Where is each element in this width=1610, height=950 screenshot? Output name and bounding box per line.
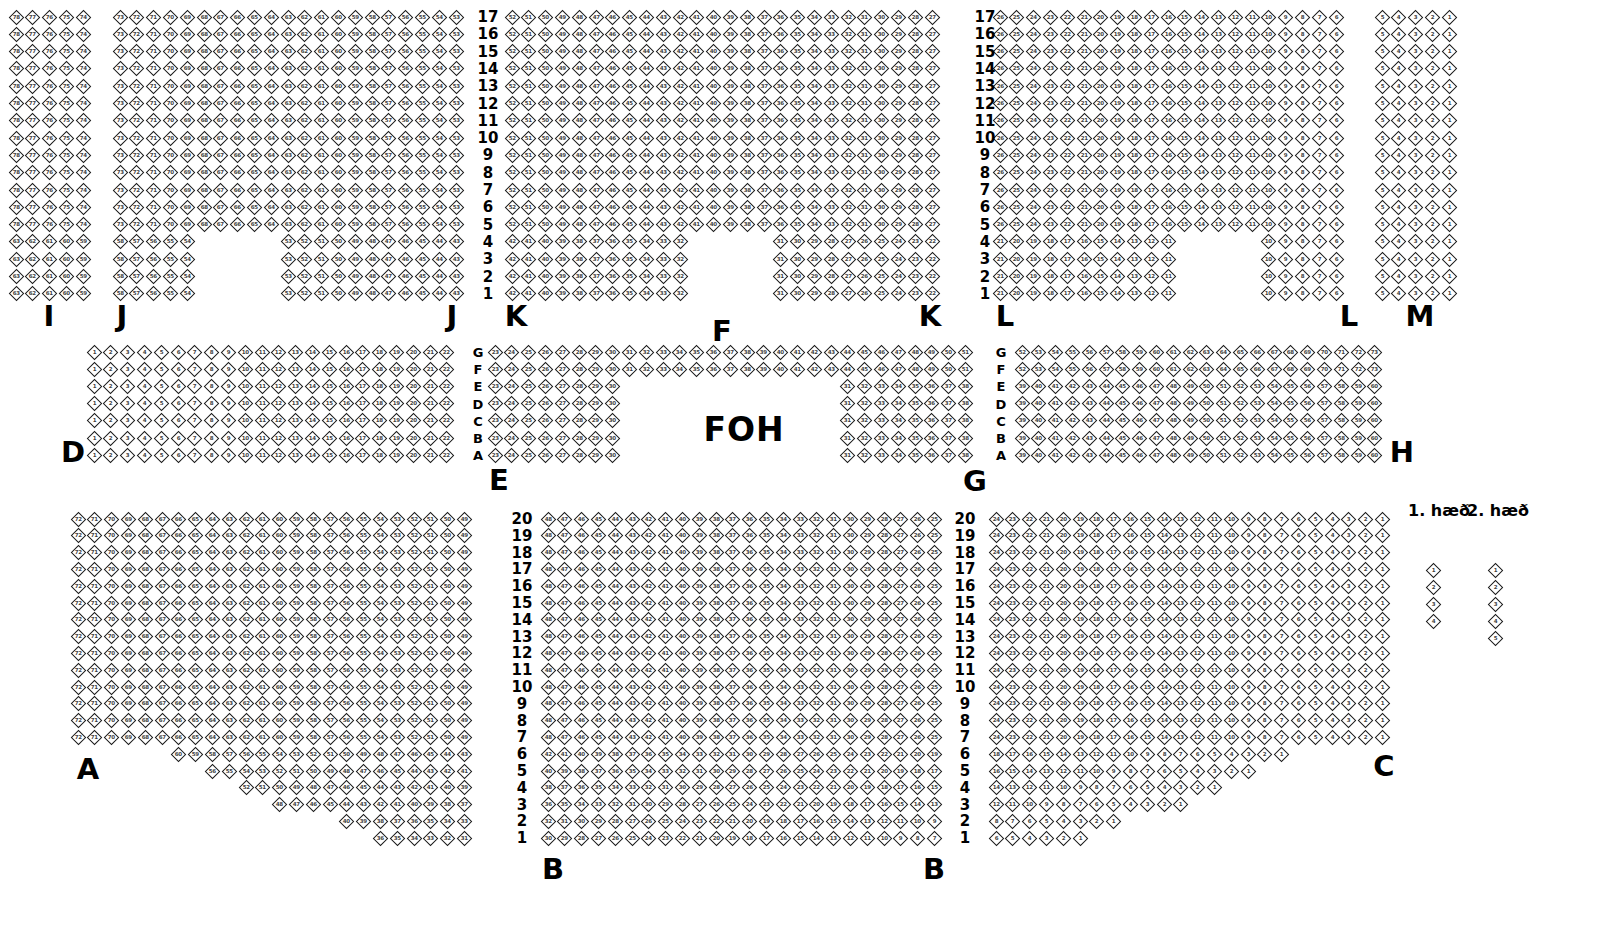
seat-L-3[interactable]: 15 [1093,251,1109,267]
seat-L-15[interactable]: 11 [1244,44,1260,60]
seat-L-11[interactable]: 18 [1127,113,1143,129]
seat-A-11[interactable]: 60 [272,662,288,678]
seat-B-20[interactable]: 38 [708,511,724,527]
seat-K-2[interactable]: 26 [857,269,873,285]
seat-B-13[interactable]: 26 [910,629,926,645]
seat-EFG-G[interactable]: 49 [924,344,940,360]
seat-H-A[interactable]: 45 [1115,447,1131,463]
seat-I-4[interactable]: 63 [8,234,24,250]
seat-A-20[interactable]: 66 [171,511,187,527]
seat-K-14[interactable]: 27 [924,61,940,77]
seat-K-12[interactable]: 46 [605,96,621,112]
seat-I-7[interactable]: 78 [8,182,24,198]
seat-K-14[interactable]: 33 [823,61,839,77]
seat-L-4[interactable]: 7 [1311,234,1327,250]
seat-B-1[interactable]: 14 [809,830,825,846]
seat-L-14[interactable]: 18 [1127,61,1143,77]
seat-J-7[interactable]: 68 [196,182,212,198]
seat-D-E[interactable]: 20 [405,379,421,395]
seat-A-10[interactable]: 56 [339,679,355,695]
seat-C-8[interactable]: 9 [1240,713,1256,729]
seat-K-9[interactable]: 29 [891,148,907,164]
seat-L-9[interactable]: 9 [1278,148,1294,164]
seat-K-7[interactable]: 39 [723,182,739,198]
seat-D-C[interactable]: 1 [86,413,102,429]
seat-C-6[interactable]: 3 [1240,746,1256,762]
seat-EFG-B[interactable]: 23 [487,430,503,446]
seat-A-8[interactable]: 66 [171,713,187,729]
seat-H-B[interactable]: 39 [1014,430,1030,446]
seat-B-7[interactable]: 26 [910,730,926,746]
seat-B-17[interactable]: 40 [675,562,691,578]
seat-D-A[interactable]: 13 [288,447,304,463]
seat-H-F[interactable]: 66 [1249,361,1265,377]
seat-L-16[interactable]: 10 [1261,27,1277,43]
seat-A-4[interactable]: 44 [373,780,389,796]
seat-A-6[interactable]: 44 [440,746,456,762]
seat-J-6[interactable]: 71 [146,200,162,216]
seat-I-12[interactable]: 76 [42,96,58,112]
seat-J-8[interactable]: 53 [448,165,464,181]
seat-C-10[interactable]: 4 [1324,679,1340,695]
seat-C-13[interactable]: 4 [1324,629,1340,645]
seat-C-4[interactable]: 13 [1005,780,1021,796]
seat-A-15[interactable]: 50 [440,595,456,611]
seat-C-3[interactable]: 5 [1106,797,1122,813]
seat-K-10[interactable]: 44 [639,130,655,146]
seat-L-10[interactable]: 9 [1278,130,1294,146]
seat-D-B[interactable]: 7 [187,430,203,446]
seat-J-9[interactable]: 63 [280,148,296,164]
seat-M-8[interactable]: 4 [1391,165,1407,181]
seat-K-8[interactable]: 29 [891,165,907,181]
seat-A-6[interactable]: 57 [221,746,237,762]
seat-B-17[interactable]: 46 [574,562,590,578]
seat-I-6[interactable]: 78 [8,200,24,216]
seat-L-8[interactable]: 17 [1143,165,1159,181]
seat-B-19[interactable]: 36 [742,528,758,544]
seat-K-2[interactable]: 34 [639,269,655,285]
seat-B-18[interactable]: 30 [843,545,859,561]
seat-C-7[interactable]: 17 [1106,730,1122,746]
seat-L-8[interactable]: 26 [992,165,1008,181]
seat-I-14[interactable]: 78 [8,61,24,77]
seat-C-16[interactable]: 15 [1139,578,1155,594]
seat-K-10[interactable]: 34 [807,130,823,146]
seat-EFG-A[interactable]: 32 [857,447,873,463]
seat-C-12[interactable]: 22 [1022,646,1038,662]
seat-A-13[interactable]: 51 [423,629,439,645]
seat-EFG-G[interactable]: 45 [857,344,873,360]
seat-L-14[interactable]: 15 [1177,61,1193,77]
seat-L-10[interactable]: 7 [1311,130,1327,146]
seat-D-G[interactable]: 12 [271,344,287,360]
seat-B-17[interactable]: 30 [843,562,859,578]
seat-K-17[interactable]: 49 [555,9,571,25]
seat-D-G[interactable]: 21 [422,344,438,360]
seat-L-16[interactable]: 25 [1009,27,1025,43]
seat-L-5[interactable]: 17 [1143,217,1159,233]
seat-H-C[interactable]: 43 [1081,413,1097,429]
seat-I-2[interactable]: 61 [42,269,58,285]
seat-C-9[interactable]: 24 [988,696,1004,712]
seat-C-11[interactable]: 4 [1324,662,1340,678]
seat-A-14[interactable]: 61 [255,612,271,628]
seat-A-6[interactable]: 53 [289,746,305,762]
seat-A-8[interactable]: 64 [205,713,221,729]
seat-C-17[interactable]: 9 [1240,562,1256,578]
seat-L-14[interactable]: 11 [1244,61,1260,77]
seat-J-3[interactable]: 53 [280,251,296,267]
seat-J-9[interactable]: 69 [179,148,195,164]
seat-I-9[interactable]: 76 [42,148,58,164]
seat-B-15[interactable]: 36 [742,595,758,611]
seat-EFG-E[interactable]: 33 [874,379,890,395]
seat-C-20[interactable]: 22 [1022,511,1038,527]
seat-B-12[interactable]: 38 [708,646,724,662]
seat-K-13[interactable]: 44 [639,78,655,94]
seat-C-16[interactable]: 22 [1022,578,1038,594]
seat-J-6[interactable]: 62 [297,200,313,216]
seat-EFG-E[interactable]: 38 [958,379,974,395]
seat-K-16[interactable]: 30 [874,27,890,43]
seat-H-A[interactable]: 53 [1249,447,1265,463]
seat-A-9[interactable]: 50 [440,696,456,712]
seat-H-E[interactable]: 52 [1233,379,1249,395]
seat-A-15[interactable]: 63 [221,595,237,611]
seat-J-12[interactable]: 56 [398,96,414,112]
seat-B-20[interactable]: 26 [910,511,926,527]
seat-H-G[interactable]: 70 [1317,344,1333,360]
seat-K-3[interactable]: 36 [605,251,621,267]
seat-C-5[interactable]: 6 [1156,763,1172,779]
seat-H-A[interactable]: 46 [1132,447,1148,463]
seat-A-14[interactable]: 49 [457,612,473,628]
seat-K-5[interactable]: 44 [639,217,655,233]
seat-A-13[interactable]: 67 [154,629,170,645]
seat-C-1[interactable]: 1 [1072,830,1088,846]
seat-A-13[interactable]: 71 [87,629,103,645]
seat-D-A[interactable]: 10 [237,447,253,463]
legend-seat[interactable]: 4 [1425,613,1441,629]
seat-L-4[interactable]: 20 [1009,234,1025,250]
seat-C-20[interactable]: 11 [1207,511,1223,527]
seat-K-15[interactable]: 47 [588,44,604,60]
seat-M-11[interactable]: 2 [1425,113,1441,129]
seat-A-12[interactable]: 50 [440,646,456,662]
seat-B-19[interactable]: 26 [910,528,926,544]
seat-A-19[interactable]: 68 [137,528,153,544]
seat-J-5[interactable]: 64 [263,217,279,233]
seat-M-17[interactable]: 4 [1391,9,1407,25]
seat-K-7[interactable]: 29 [891,182,907,198]
seat-B-2[interactable]: 16 [809,814,825,830]
seat-C-7[interactable]: 8 [1257,730,1273,746]
seat-H-C[interactable]: 44 [1098,413,1114,429]
seat-M-11[interactable]: 3 [1408,113,1424,129]
seat-C-9[interactable]: 22 [1022,696,1038,712]
seat-J-14[interactable]: 55 [415,61,431,77]
seat-A-12[interactable]: 66 [171,646,187,662]
seat-A-20[interactable]: 51 [423,511,439,527]
seat-K-13[interactable]: 35 [790,78,806,94]
seat-M-15[interactable]: 5 [1374,44,1390,60]
seat-L-5[interactable]: 14 [1194,217,1210,233]
seat-A-17[interactable]: 57 [322,562,338,578]
seat-K-17[interactable]: 39 [723,9,739,25]
seat-C-4[interactable]: 6 [1123,780,1139,796]
seat-A-18[interactable]: 66 [171,545,187,561]
seat-C-13[interactable]: 10 [1223,629,1239,645]
seat-C-9[interactable]: 7 [1274,696,1290,712]
seat-B-16[interactable]: 44 [607,578,623,594]
seat-L-1[interactable]: 7 [1311,286,1327,302]
seat-K-6[interactable]: 27 [924,200,940,216]
seat-A-19[interactable]: 52 [406,528,422,544]
seat-C-19[interactable]: 17 [1106,528,1122,544]
seat-D-F[interactable]: 21 [422,361,438,377]
seat-K-6[interactable]: 42 [672,200,688,216]
seat-M-2[interactable]: 3 [1408,269,1424,285]
seat-K-9[interactable]: 39 [723,148,739,164]
seat-K-16[interactable]: 42 [672,27,688,43]
seat-A-19[interactable]: 50 [440,528,456,544]
seat-B-1[interactable]: 10 [876,830,892,846]
seat-J-6[interactable]: 56 [398,200,414,216]
seat-K-8[interactable]: 44 [639,165,655,181]
seat-B-6[interactable]: 20 [910,746,926,762]
seat-J-15[interactable]: 68 [196,44,212,60]
seat-A-15[interactable]: 64 [205,595,221,611]
seat-B-14[interactable]: 30 [843,612,859,628]
seat-C-13[interactable]: 2 [1358,629,1374,645]
seat-K-1[interactable]: 38 [571,286,587,302]
seat-M-8[interactable]: 5 [1374,165,1390,181]
seat-EFG-G[interactable]: 28 [571,344,587,360]
seat-A-18[interactable]: 54 [373,545,389,561]
seat-K-12[interactable]: 44 [639,96,655,112]
seat-A-20[interactable]: 57 [322,511,338,527]
seat-K-11[interactable]: 45 [622,113,638,129]
seat-B-2[interactable]: 28 [607,814,623,830]
seat-J-11[interactable]: 59 [347,113,363,129]
seat-D-G[interactable]: 22 [439,344,455,360]
seat-C-16[interactable]: 8 [1257,578,1273,594]
seat-J-13[interactable]: 53 [448,78,464,94]
seat-K-4[interactable]: 35 [622,234,638,250]
seat-B-8[interactable]: 33 [792,713,808,729]
seat-J-9[interactable]: 62 [297,148,313,164]
seat-K-7[interactable]: 33 [823,182,839,198]
seat-H-B[interactable]: 46 [1132,430,1148,446]
seat-I-15[interactable]: 76 [42,44,58,60]
seat-L-15[interactable]: 14 [1194,44,1210,60]
seat-B-14[interactable]: 48 [540,612,556,628]
seat-B-18[interactable]: 46 [574,545,590,561]
seat-B-14[interactable]: 31 [826,612,842,628]
seat-J-10[interactable]: 56 [398,130,414,146]
seat-B-8[interactable]: 47 [557,713,573,729]
seat-K-12[interactable]: 36 [773,96,789,112]
seat-J-8[interactable]: 72 [129,165,145,181]
seat-H-D[interactable]: 42 [1065,396,1081,412]
seat-J-8[interactable]: 73 [112,165,128,181]
seat-J-8[interactable]: 64 [263,165,279,181]
seat-K-8[interactable]: 34 [807,165,823,181]
seat-H-B[interactable]: 50 [1199,430,1215,446]
seat-J-13[interactable]: 60 [331,78,347,94]
seat-A-8[interactable]: 51 [423,713,439,729]
seat-C-18[interactable]: 20 [1055,545,1071,561]
seat-B-8[interactable]: 26 [910,713,926,729]
seat-D-D[interactable]: 11 [254,396,270,412]
seat-A-9[interactable]: 56 [339,696,355,712]
seat-C-5[interactable]: 7 [1139,763,1155,779]
seat-K-7[interactable]: 42 [672,182,688,198]
seat-L-16[interactable]: 23 [1043,27,1059,43]
seat-A-18[interactable]: 50 [440,545,456,561]
seat-H-E[interactable]: 48 [1165,379,1181,395]
seat-A-7[interactable]: 72 [70,730,86,746]
seat-B-5[interactable]: 17 [927,763,943,779]
seat-J-15[interactable]: 67 [213,44,229,60]
seat-J-2[interactable]: 48 [364,269,380,285]
seat-D-F[interactable]: 13 [288,361,304,377]
seat-A-13[interactable]: 59 [289,629,305,645]
seat-K-8[interactable]: 42 [672,165,688,181]
seat-J-12[interactable]: 57 [381,96,397,112]
seat-M-5[interactable]: 2 [1425,217,1441,233]
seat-L-4[interactable]: 14 [1110,234,1126,250]
seat-A-13[interactable]: 57 [322,629,338,645]
seat-C-8[interactable]: 2 [1358,713,1374,729]
seat-K-12[interactable]: 45 [622,96,638,112]
legend-seat[interactable]: 1 [1487,562,1503,578]
seat-A-9[interactable]: 64 [205,696,221,712]
seat-B-3[interactable]: 14 [910,797,926,813]
seat-B-13[interactable]: 27 [893,629,909,645]
seat-L-16[interactable]: 11 [1244,27,1260,43]
seat-B-9[interactable]: 33 [792,696,808,712]
seat-A-3[interactable]: 42 [373,797,389,813]
seat-J-10[interactable]: 64 [263,130,279,146]
seat-J-12[interactable]: 59 [347,96,363,112]
seat-A-11[interactable]: 58 [305,662,321,678]
seat-B-13[interactable]: 37 [725,629,741,645]
seat-K-1[interactable]: 36 [605,286,621,302]
seat-B-3[interactable]: 17 [859,797,875,813]
seat-J-13[interactable]: 63 [280,78,296,94]
seat-K-16[interactable]: 28 [907,27,923,43]
seat-B-11[interactable]: 32 [809,662,825,678]
seat-C-15[interactable]: 12 [1190,595,1206,611]
seat-K-10[interactable]: 30 [874,130,890,146]
seat-L-13[interactable]: 15 [1177,78,1193,94]
seat-H-A[interactable]: 50 [1199,447,1215,463]
seat-L-16[interactable]: 16 [1160,27,1176,43]
seat-J-10[interactable]: 65 [247,130,263,146]
seat-L-17[interactable]: 22 [1059,9,1075,25]
seat-A-20[interactable]: 50 [440,511,456,527]
seat-L-5[interactable]: 21 [1076,217,1092,233]
seat-B-15[interactable]: 27 [893,595,909,611]
seat-D-A[interactable]: 14 [305,447,321,463]
seat-H-E[interactable]: 57 [1317,379,1333,395]
seat-B-17[interactable]: 47 [557,562,573,578]
seat-C-18[interactable]: 15 [1139,545,1155,561]
seat-L-9[interactable]: 10 [1261,148,1277,164]
seat-K-1[interactable]: 29 [807,286,823,302]
seat-J-10[interactable]: 68 [196,130,212,146]
seat-B-15[interactable]: 40 [675,595,691,611]
seat-C-10[interactable]: 10 [1223,679,1239,695]
seat-B-4[interactable]: 30 [675,780,691,796]
seat-J-11[interactable]: 70 [163,113,179,129]
seat-C-7[interactable]: 7 [1274,730,1290,746]
seat-J-15[interactable]: 62 [297,44,313,60]
seat-B-7[interactable]: 27 [893,730,909,746]
seat-B-5[interactable]: 30 [708,763,724,779]
seat-D-A[interactable]: 22 [439,447,455,463]
seat-B-10[interactable]: 29 [859,679,875,695]
seat-D-C[interactable]: 3 [120,413,136,429]
seat-EFG-G[interactable]: 33 [655,344,671,360]
seat-C-14[interactable]: 3 [1341,612,1357,628]
seat-I-13[interactable]: 75 [59,78,75,94]
seat-J-6[interactable]: 69 [179,200,195,216]
seat-K-6[interactable]: 36 [773,200,789,216]
seat-D-D[interactable]: 5 [153,396,169,412]
seat-C-18[interactable]: 24 [988,545,1004,561]
seat-K-9[interactable]: 37 [756,148,772,164]
seat-J-6[interactable]: 61 [314,200,330,216]
seat-C-8[interactable]: 19 [1072,713,1088,729]
seat-K-6[interactable]: 29 [891,200,907,216]
seat-K-6[interactable]: 40 [706,200,722,216]
seat-J-13[interactable]: 72 [129,78,145,94]
seat-J-8[interactable]: 66 [230,165,246,181]
seat-L-4[interactable]: 21 [992,234,1008,250]
seat-C-8[interactable]: 5 [1307,713,1323,729]
seat-K-4[interactable]: 25 [874,234,890,250]
seat-K-15[interactable]: 44 [639,44,655,60]
seat-A-18[interactable]: 70 [104,545,120,561]
seat-H-B[interactable]: 47 [1149,430,1165,446]
seat-K-16[interactable]: 44 [639,27,655,43]
seat-J-4[interactable]: 58 [112,234,128,250]
seat-L-2[interactable]: 13 [1127,269,1143,285]
seat-J-3[interactable]: 47 [381,251,397,267]
seat-B-9[interactable]: 28 [876,696,892,712]
seat-K-10[interactable]: 37 [756,130,772,146]
seat-A-5[interactable]: 55 [221,763,237,779]
seat-M-3[interactable]: 5 [1374,251,1390,267]
seat-K-17[interactable]: 47 [588,9,604,25]
seat-K-7[interactable]: 48 [571,182,587,198]
seat-C-3[interactable]: 8 [1055,797,1071,813]
seat-D-B[interactable]: 6 [170,430,186,446]
seat-K-14[interactable]: 31 [857,61,873,77]
seat-M-14[interactable]: 2 [1425,61,1441,77]
seat-K-13[interactable]: 28 [907,78,923,94]
seat-C-13[interactable]: 8 [1257,629,1273,645]
seat-B-13[interactable]: 44 [607,629,623,645]
seat-K-5[interactable]: 47 [588,217,604,233]
seat-J-6[interactable]: 67 [213,200,229,216]
seat-D-E[interactable]: 22 [439,379,455,395]
seat-C-20[interactable]: 17 [1106,511,1122,527]
seat-EFG-B[interactable]: 36 [924,430,940,446]
